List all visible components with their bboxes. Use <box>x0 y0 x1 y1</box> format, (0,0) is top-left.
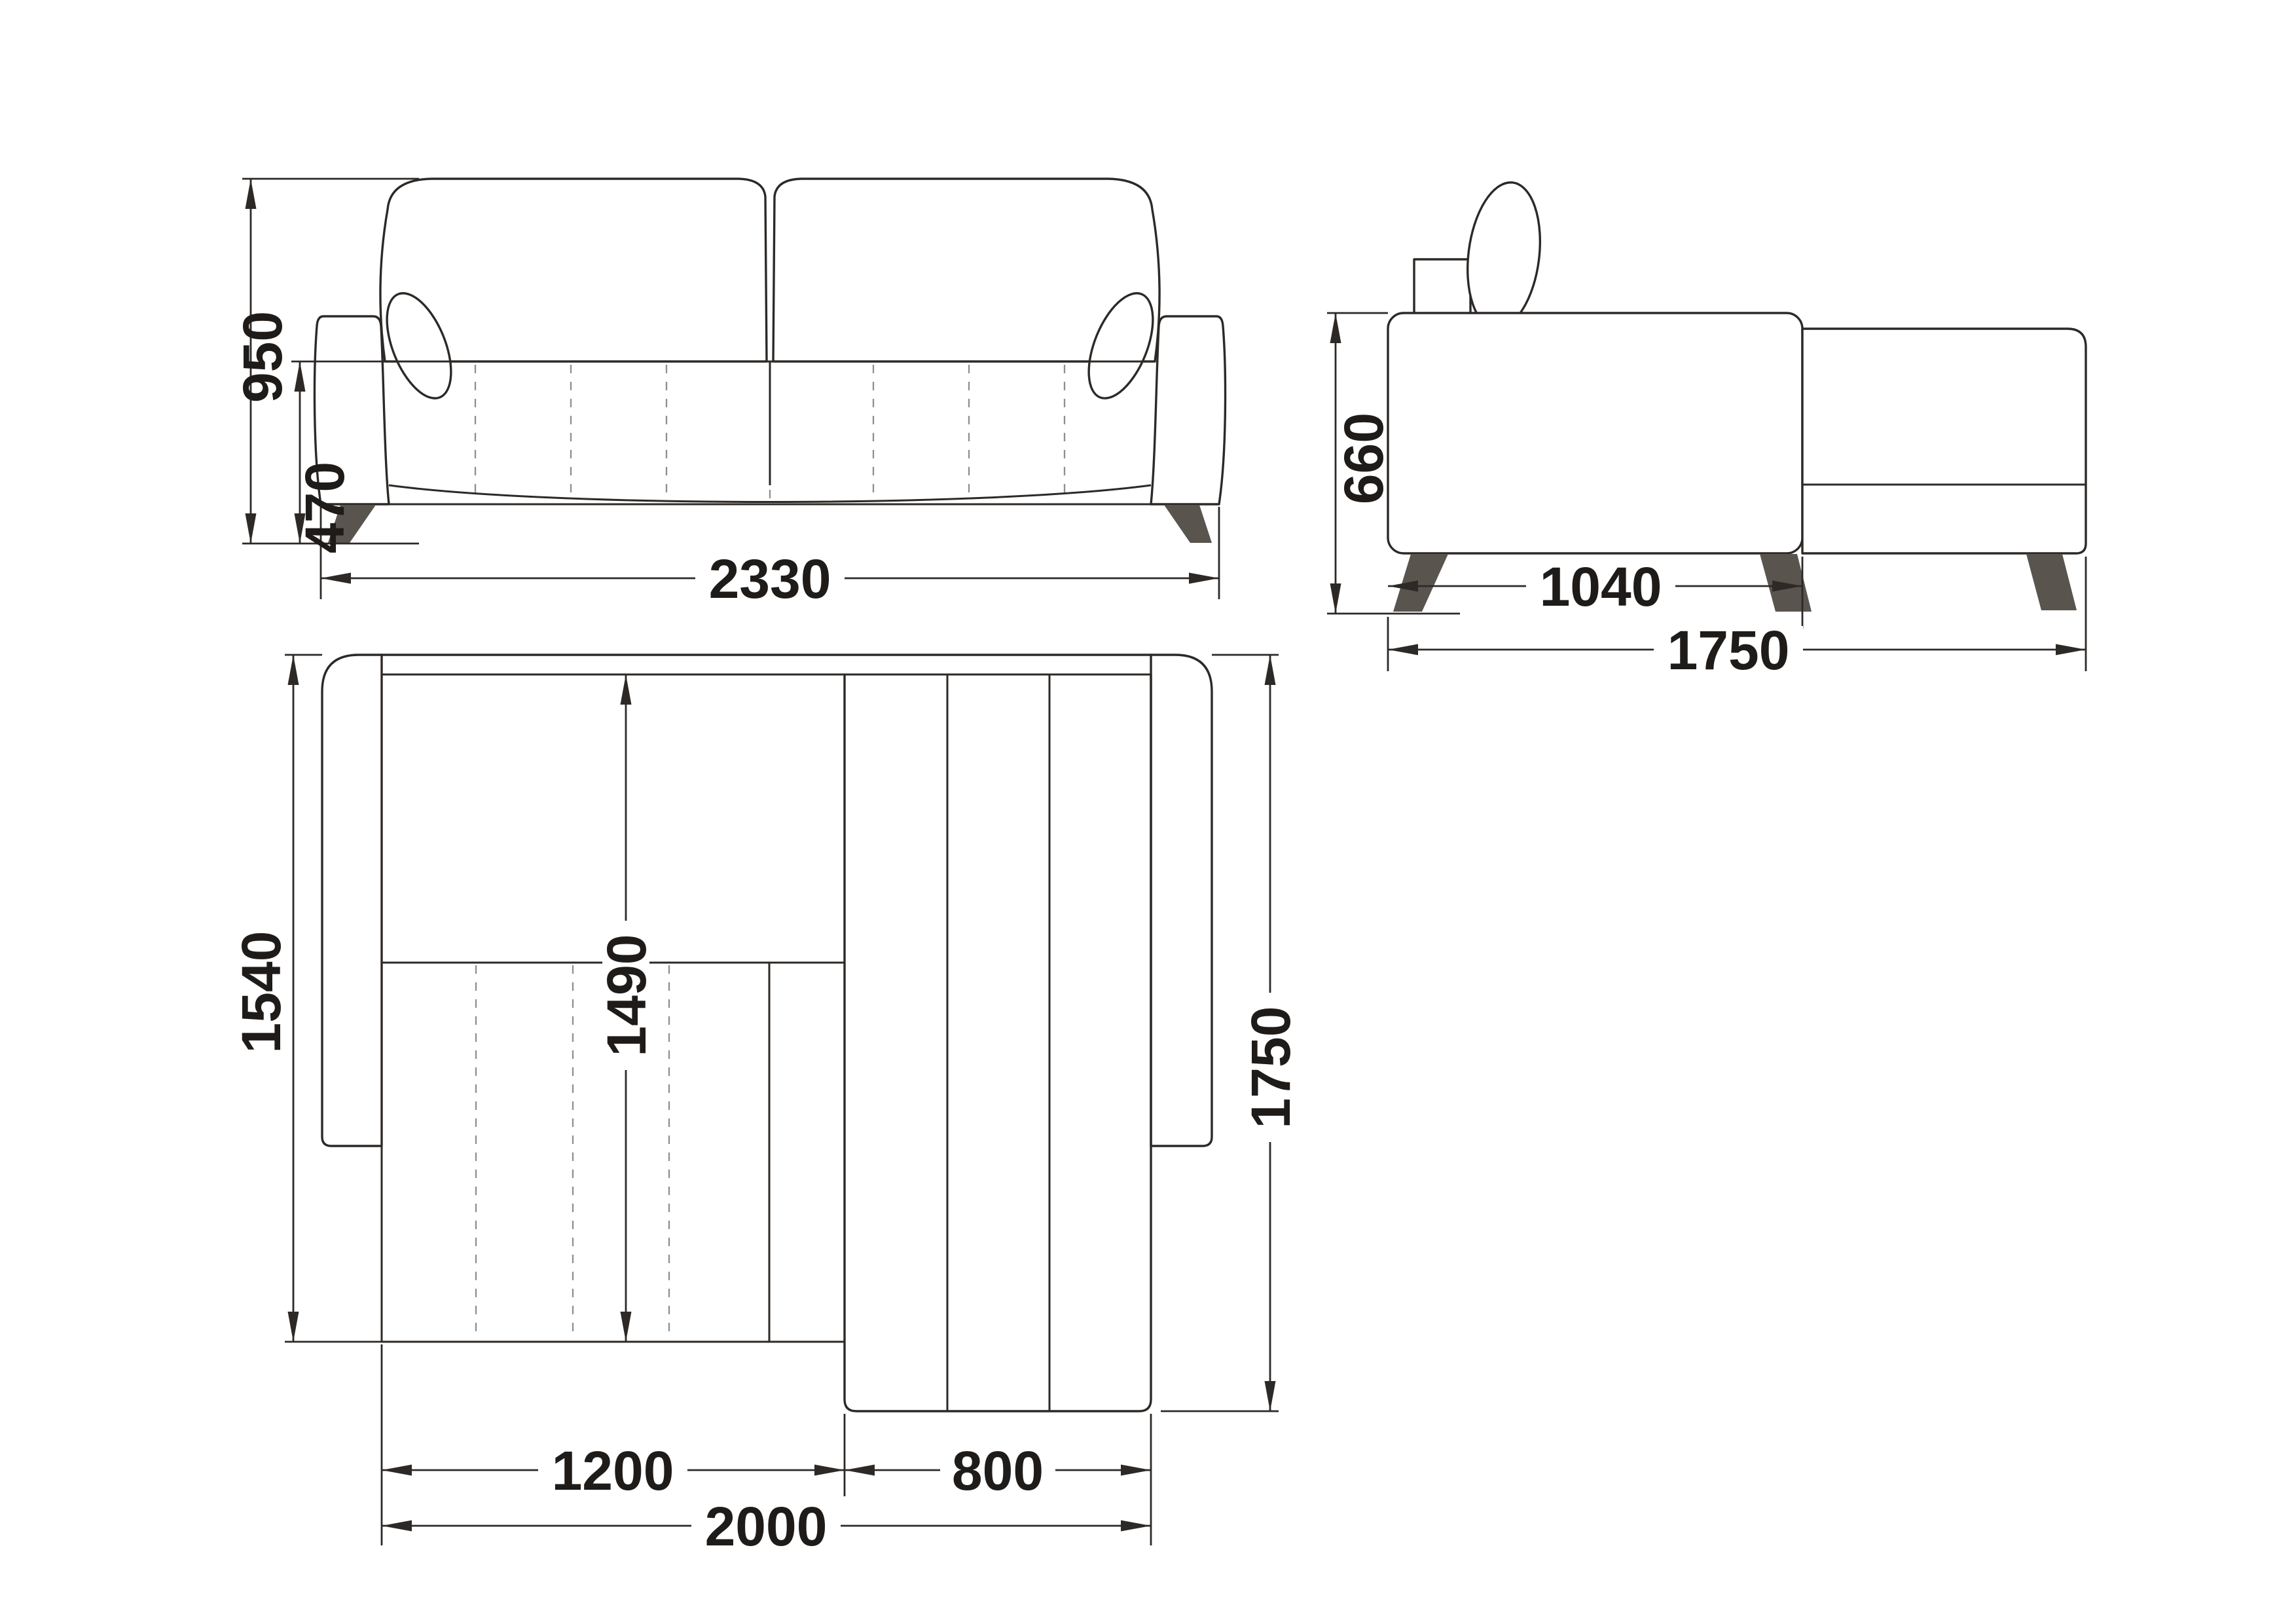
dim-label-side-back-height: 660 <box>1333 413 1394 504</box>
side-body <box>1388 313 1802 553</box>
side-chaise <box>1802 329 2086 553</box>
top-chaise-outline <box>845 674 1151 1411</box>
side-leg-middle <box>1760 554 1812 612</box>
drawing-canvas: 950 470 2330 660 1040 1750 1540 1490 <box>0 0 2296 1624</box>
front-leg-right <box>1164 505 1212 543</box>
dim-label-front-overall-width-group: 2330 <box>695 548 845 610</box>
side-back-cushion <box>1460 178 1548 332</box>
front-armrest-right <box>1151 316 1226 504</box>
front-view <box>242 179 1226 599</box>
technical-drawing: 950 470 2330 660 1040 1750 1540 1490 <box>0 0 2296 1624</box>
dim-label-side-seat-depth: 1040 <box>1540 556 1662 618</box>
side-back-panel <box>1414 259 1470 316</box>
dim-label-top-bed-width-group: 2000 <box>691 1496 841 1557</box>
dim-label-top-seat-width: 1200 <box>552 1440 674 1502</box>
dim-label-top-overall-depth: 1750 <box>1240 1006 1302 1129</box>
dim-label-front-overall-height: 950 <box>232 311 293 403</box>
dim-label-top-seat-width-group: 1200 <box>538 1440 687 1502</box>
top-armrest-left <box>322 655 382 1146</box>
top-armrest-right <box>1151 655 1212 1146</box>
dim-label-top-chaise-width: 800 <box>952 1440 1044 1502</box>
dim-label-top-overall-depth-group: 1750 <box>1240 993 1302 1142</box>
dim-label-top-chaise-width-group: 800 <box>940 1440 1055 1502</box>
dim-label-front-seat-height: 470 <box>294 462 355 553</box>
front-legs <box>328 505 1212 543</box>
side-legs <box>1393 554 2077 612</box>
dim-label-side-overall-depth: 1750 <box>1667 619 1790 681</box>
dim-label-top-body-depth: 1540 <box>230 931 292 1054</box>
side-view <box>1327 178 2086 671</box>
dim-label-top-bed-width: 2000 <box>705 1496 828 1557</box>
dim-label-front-overall-width: 2330 <box>709 548 831 610</box>
dim-label-side-seat-depth-group: 1040 <box>1526 556 1675 618</box>
side-leg-front <box>1393 554 1448 612</box>
top-view <box>285 655 1279 1545</box>
side-leg-back <box>2026 554 2077 610</box>
dim-label-top-bed-length-group: 1490 <box>596 921 657 1070</box>
dim-label-side-overall-depth-group: 1750 <box>1654 619 1803 681</box>
dim-label-top-bed-length: 1490 <box>596 934 657 1057</box>
